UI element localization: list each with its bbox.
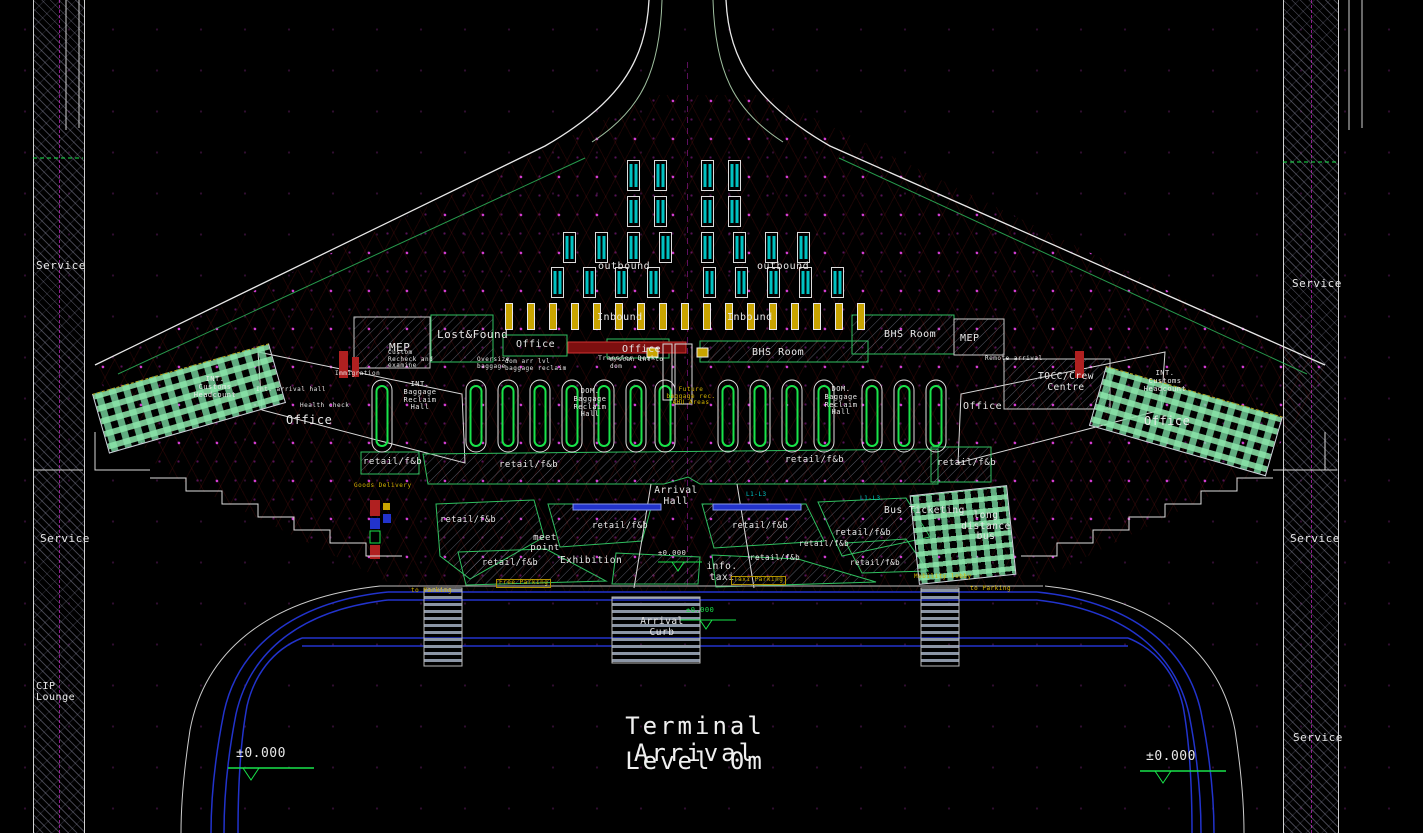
label-retail-band-right: retail/f&b <box>785 455 844 465</box>
label-office-1: Office <box>516 339 555 350</box>
label-int-customs-left: INT. Customs Headcount <box>185 376 245 399</box>
label-retail-small-2: retail/f&b <box>750 554 800 562</box>
label-mscan: m/scan int to dom <box>610 357 663 370</box>
label-free-parking: Free Parking <box>496 579 551 588</box>
label-service-top-right: Service <box>1292 278 1342 290</box>
label-int-customs-right: INT. Customs Headcount <box>1135 370 1195 393</box>
service-core-blue-1 <box>370 518 380 529</box>
label-inbound-left: Inbound <box>597 312 643 323</box>
label-retail-band-far-right: retail/f&b <box>937 458 996 468</box>
label-cip-lounge: CIP Lounge <box>36 681 75 703</box>
label-office-left-wing: Office <box>286 414 332 427</box>
label-arrival-curb: Arrival Curb <box>634 617 690 638</box>
crosswalk-left <box>424 588 462 666</box>
label-elevation-curb: ±0.000 <box>686 607 714 615</box>
label-retail-wedge-1: retail/f&b <box>440 516 496 526</box>
label-int-arrival-hall: Int. arrival hall <box>256 387 326 394</box>
label-to-parking-right: to Parking <box>970 586 1011 593</box>
bench-right <box>713 504 801 510</box>
label-immigration: Immigration <box>335 371 380 378</box>
label-tocc-crew-centre: TOCC/Crew Centre <box>1018 372 1114 393</box>
label-retail-bottom: retail/f&b <box>482 559 538 569</box>
label-office-right-1: Office <box>963 401 1002 412</box>
label-remote-arrival: Remote arrival <box>985 356 1043 363</box>
label-l1-l3-a: L1-L3 <box>746 492 767 499</box>
label-retail-small-1: retail/f&b <box>799 540 849 548</box>
service-core-red-2 <box>370 545 380 559</box>
service-core-blue-2 <box>383 514 391 523</box>
drawing-title-line2: Level 0m <box>564 748 826 775</box>
label-service-mid-left: Service <box>40 533 90 545</box>
label-outbound-left: outbound <box>598 261 650 272</box>
label-exhibition: Exhibition <box>560 556 622 567</box>
label-long-distance-bus: long distance bus <box>950 511 1022 543</box>
label-meet-point: meet point <box>521 533 569 553</box>
label-outbound-right: outbound <box>757 261 809 272</box>
label-dom-baggage-reclaim-center: DOM. Baggage Reclaim Hall <box>564 388 616 419</box>
label-int-baggage-reclaim: INT. Baggage Reclaim Hall <box>394 381 446 412</box>
label-bhs-room-right: BHS Room <box>884 329 936 340</box>
label-retail-wedge-2: retail/f&b <box>592 522 648 532</box>
label-taxi-parking: Taxi Parking <box>731 576 786 585</box>
label-elevation-left: ±0.000 <box>236 747 286 762</box>
lift-box-right <box>697 348 708 357</box>
label-retail-wedge-4: retail/f&b <box>835 529 891 539</box>
label-retail-band-left: retail/f&b <box>363 457 422 467</box>
inbound-belt-row <box>506 304 865 330</box>
label-future-ahu: Future baggage rec. AHU Areas <box>662 387 720 407</box>
escalator-banks <box>552 161 844 298</box>
label-to-parking-left: to Parking <box>411 588 452 595</box>
label-dom-baggage-reclaim-right: DOM. Baggage Reclaim Hall <box>815 386 867 417</box>
label-service-mid-right: Service <box>1290 533 1340 545</box>
label-retail-wedge-3: retail/f&b <box>732 522 788 532</box>
label-elevation-hall: ±0.000 <box>658 550 686 558</box>
label-health-check: Health check <box>300 403 349 410</box>
terminal-arrival-floor-plan: Service Service Service Service Service … <box>0 0 1423 833</box>
label-custom-recheck: Custom Recheck and examine <box>388 350 433 370</box>
label-service-top-left: Service <box>36 260 86 272</box>
label-inbound-right: Inbound <box>727 312 773 323</box>
label-office-right-wing: Office <box>1144 415 1190 428</box>
label-mobility-lobby: Mobility lobby <box>914 574 972 581</box>
label-retail-small-3: retail/f&b <box>850 559 900 567</box>
label-retail-band-center: retail/f&b <box>499 460 558 470</box>
label-goods-delivery: Goods Delivery <box>354 483 412 490</box>
label-arrival-hall: Arrival Hall <box>648 486 704 507</box>
label-dom-arr-reclaim: dom arr lvl baggage reclaim <box>505 359 567 372</box>
service-core-red-1 <box>370 500 380 516</box>
label-service-bottom-right: Service <box>1293 732 1343 744</box>
label-lost-found: Lost&Found <box>437 329 508 341</box>
label-elevation-right: ±0.000 <box>1146 750 1196 765</box>
label-mep-right: MEP <box>960 333 980 344</box>
service-core-green <box>370 531 380 543</box>
label-l1-l3-b: L1-L3 <box>860 496 881 503</box>
service-core-yellow <box>383 503 390 510</box>
label-bhs-room-long: BHS Room <box>752 347 804 358</box>
curb-and-roads <box>181 586 1244 833</box>
crosswalk-right <box>921 588 959 666</box>
